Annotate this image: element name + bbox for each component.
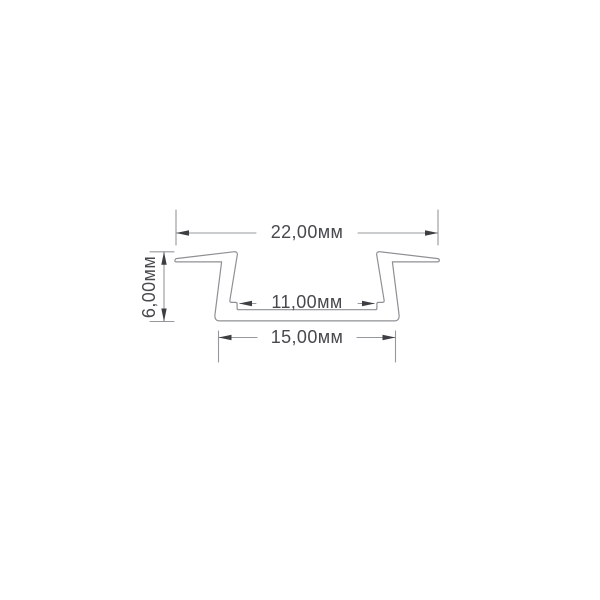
dimension-label-base-width: 15,00мм — [271, 328, 344, 346]
arrowhead-top — [161, 252, 166, 265]
arrowhead-left — [219, 335, 232, 340]
arrowhead-bottom — [161, 309, 166, 322]
drawing-canvas: 22,00мм 11,00мм 15,00мм 6,00мм — [0, 0, 600, 600]
dimension-label-outer-width: 22,00мм — [271, 223, 344, 241]
arrowhead-right — [362, 301, 375, 306]
arrowhead-right — [425, 230, 438, 235]
dimension-label-inner-width: 11,00мм — [271, 293, 342, 311]
arrowhead-left — [239, 301, 252, 306]
arrowhead-left — [176, 230, 189, 235]
arrowhead-right — [383, 335, 396, 340]
dimension-label-height: 6,00мм — [140, 256, 158, 318]
